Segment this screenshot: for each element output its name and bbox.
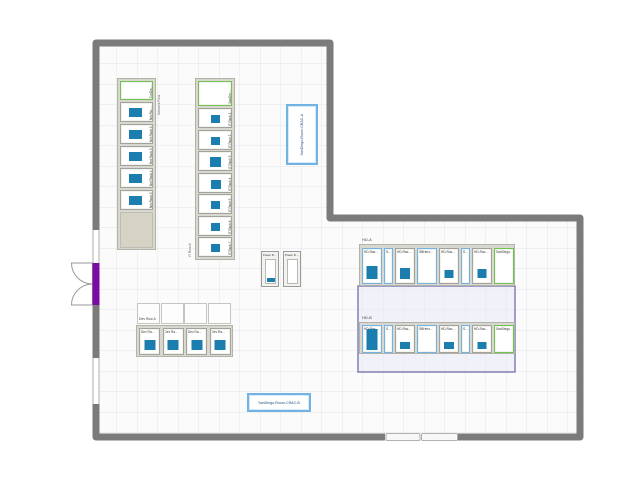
hd-row-a-container[interactable]: HD-Rac… S… HD-Rac… SBHmo… HD-Rac… S… HD-… [359, 244, 515, 286]
network-rack[interactable]: Net Rack 3 [120, 146, 153, 166]
it-rack[interactable]: IT Rack 2 [198, 130, 232, 150]
it-row-title: IT Row A [188, 227, 192, 257]
network-rack[interactable]: Net Rack 4 [120, 168, 153, 188]
hd-b-title: HD-B [362, 315, 372, 320]
hd-rack[interactable]: S… [384, 248, 393, 284]
door-panel-right[interactable] [422, 433, 458, 440]
empty-cell[interactable] [184, 303, 207, 324]
rack-label: IT Rack 3 [228, 153, 232, 169]
device[interactable] [144, 340, 155, 350]
device[interactable] [400, 268, 410, 279]
it-rack[interactable]: IT Rack 5 [198, 194, 232, 214]
empty-row-slot[interactable] [120, 212, 153, 248]
rack-label: HD-Rac… [397, 327, 413, 331]
it-rack[interactable]: IT Rack 7 [198, 237, 232, 257]
rack-label: SanDiego… [496, 250, 512, 254]
hd-rack[interactable]: HD-Rac… [362, 248, 382, 284]
hd-rack[interactable]: SanDiego… [494, 248, 514, 284]
device[interactable] [444, 342, 454, 349]
it-rack[interactable]: IT Rack 3 [198, 151, 232, 171]
device[interactable] [168, 340, 179, 350]
door-swing-upper [72, 263, 93, 284]
rack-label: IT Rack 1 [228, 110, 232, 126]
rack-label: SanDiego… [496, 327, 512, 331]
device[interactable] [400, 342, 410, 349]
rack-label: Net Rack 4 [149, 170, 153, 186]
it-rack[interactable]: IT Rack 4 [198, 173, 232, 193]
device[interactable] [211, 223, 220, 231]
rack-label: Power R… [263, 253, 277, 257]
crac-unit-a[interactable]: SanDiego-Room-CRAC-A [286, 104, 318, 165]
hd-rack[interactable]: HD-Rac… [362, 325, 382, 353]
rack-label: S… [463, 327, 468, 331]
device[interactable] [367, 266, 378, 279]
rack-label: S… [463, 250, 468, 254]
it-row-header-box[interactable]: SanDie… [198, 81, 232, 106]
device[interactable] [367, 329, 378, 350]
rack-label: SanDie… [228, 83, 232, 104]
door-panel-left[interactable] [386, 433, 420, 440]
network-row-title: Network Row [157, 77, 161, 115]
door-leaf-purple[interactable] [93, 263, 100, 305]
rack-label: IT Rack 5 [228, 196, 232, 212]
device[interactable] [191, 340, 202, 350]
device[interactable] [215, 340, 226, 350]
hd-rack[interactable]: SBHmo… [417, 248, 437, 284]
rack-label: Net Rack 2 [149, 126, 153, 142]
double-door-left[interactable] [72, 263, 100, 305]
device[interactable] [445, 270, 454, 278]
network-row-header-box[interactable]: CorDis… [120, 81, 153, 100]
hd-rack[interactable]: S… [461, 325, 470, 353]
crac-unit-b[interactable]: SanDiego-Room-CRAC-B [247, 393, 311, 412]
rack-label: CorDis… [149, 83, 153, 98]
floor-plan-drawing [0, 0, 640, 480]
empty-cell[interactable] [208, 303, 231, 324]
hd-rack[interactable]: HD-Rac… [439, 325, 459, 353]
network-rack[interactable]: Net Rack 5 [120, 190, 153, 210]
hd-rack[interactable]: S… [461, 248, 470, 284]
hd-rack[interactable]: SanDiego… [494, 325, 514, 353]
dev-row-header-cell[interactable]: Dev Row A [137, 303, 160, 324]
power-rack[interactable]: Power R… [283, 251, 301, 287]
wall-opening-left-upper[interactable] [92, 230, 100, 263]
floor-plan-canvas: Network Row CorDis… Net Ra… Net Rack 2 N… [0, 0, 640, 480]
rack-label: IT Rack 4 [228, 175, 232, 191]
rack-label: IT Rack 7 [228, 239, 232, 255]
device[interactable] [478, 342, 487, 349]
hd-rack[interactable]: HD-Rac… [395, 248, 415, 284]
rack-label: Dev Ra… [165, 330, 182, 334]
network-rack[interactable]: Net Rack 2 [120, 124, 153, 144]
empty-cell[interactable] [161, 303, 184, 324]
hd-row-b-container[interactable]: HD-Rac… S… HD-Rac… SBHmo… HD-Rac… S… HD-… [359, 322, 515, 354]
rack-label: HD-Rac… [441, 327, 457, 331]
door-swing-lower [72, 284, 93, 305]
device[interactable] [267, 278, 275, 282]
rack-label: HD-Rac… [397, 250, 413, 254]
rack-label: Dev Ra… [212, 330, 229, 334]
dev-rack[interactable]: Dev Ra… [139, 328, 160, 355]
dev-rack[interactable]: Dev Ra… [186, 328, 207, 355]
crac-a-label: SanDiego-Room-CRAC-A [300, 114, 304, 156]
rack-label: HD-Rac… [364, 250, 380, 254]
device[interactable] [129, 174, 142, 183]
crac-b-label: SanDiego-Room-CRAC-B [258, 401, 300, 405]
hd-rack[interactable]: S… [384, 325, 393, 353]
floor-grid [96, 43, 580, 437]
rack-label: HD-Rac… [474, 327, 490, 331]
network-rack[interactable]: Net Ra… [120, 102, 153, 122]
rack-label: IT Rack 2 [228, 132, 232, 148]
device[interactable] [211, 244, 220, 252]
device[interactable] [211, 180, 221, 189]
it-rack[interactable]: IT Rack 1 [198, 108, 232, 128]
device[interactable] [129, 152, 142, 161]
wall-opening-left-lower[interactable] [92, 358, 100, 404]
rack-front [287, 259, 298, 284]
device[interactable] [211, 201, 220, 209]
hd-rack[interactable]: HD-Rac… [439, 248, 459, 284]
device[interactable] [129, 108, 142, 117]
device[interactable] [129, 196, 142, 205]
hd-rack[interactable]: HD-Rac… [472, 325, 492, 353]
hd-rack[interactable]: SBHmo… [417, 325, 437, 353]
rack-label: Dev Ra… [188, 330, 205, 334]
rack-label: Dev Ra… [141, 330, 158, 334]
hd-a-title: HD-A [362, 237, 372, 242]
rack-label: SBHmo… [419, 327, 435, 331]
device[interactable] [210, 157, 221, 167]
device[interactable] [211, 115, 220, 123]
hd-rack[interactable]: HD-Rac… [395, 325, 415, 353]
rack-label: S… [386, 327, 391, 331]
rack-label: HD-Rac… [474, 250, 490, 254]
hd-rack[interactable]: HD-Rac… [472, 248, 492, 284]
rack-label: IT Rack 6 [228, 218, 232, 234]
dev-row-container[interactable]: Dev Ra… Dev Ra… Dev Ra… Dev Ra… [136, 325, 233, 357]
dev-rack[interactable]: Dev Ra… [210, 328, 231, 355]
network-row-container[interactable]: CorDis… Net Ra… Net Rack 2 Net Rack 3 Ne… [117, 78, 156, 250]
rack-label: SBHmo… [419, 250, 435, 254]
rack-label: HD-Rac… [441, 250, 457, 254]
device[interactable] [211, 137, 220, 145]
rack-label: Net Rack 5 [149, 192, 153, 208]
it-rack[interactable]: IT Rack 6 [198, 216, 232, 236]
dev-rack[interactable]: Dev Ra… [163, 328, 184, 355]
rack-label: Net Ra… [149, 104, 153, 120]
device[interactable] [478, 269, 487, 278]
double-door-bottom[interactable] [385, 433, 458, 441]
dev-row-title: Dev Row A [139, 317, 156, 322]
it-row-container[interactable]: SanDie… IT Rack 1 IT Rack 2 IT Rack 3 IT… [195, 78, 235, 260]
rack-label: Power R… [285, 253, 299, 257]
device[interactable] [129, 130, 142, 139]
rack-label: S… [386, 250, 391, 254]
power-rack[interactable]: Power R… [261, 251, 279, 287]
rack-label: Net Rack 3 [149, 148, 153, 164]
